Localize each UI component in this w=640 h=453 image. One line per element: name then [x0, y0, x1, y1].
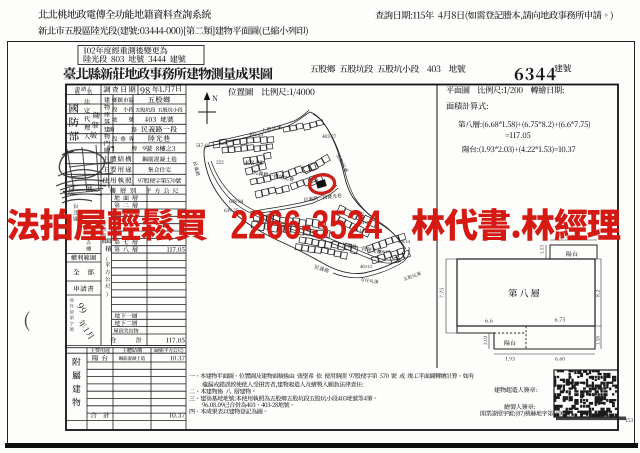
svg-text:2266-3524: 2266-3524 [231, 202, 383, 247]
